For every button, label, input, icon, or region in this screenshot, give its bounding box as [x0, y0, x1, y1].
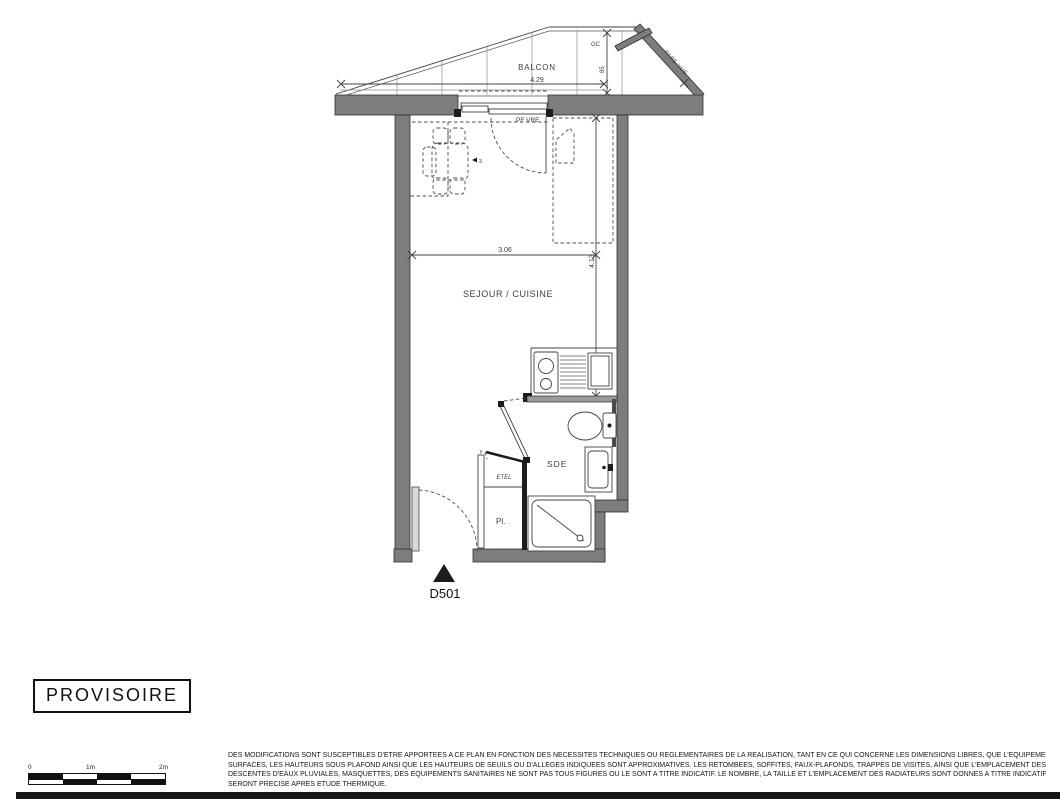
balcony: BALCON 4.29 GC 85 PARE-VUE — [336, 24, 704, 99]
scale-bar-box — [28, 773, 166, 785]
sde-door-swing — [504, 398, 526, 401]
disclaimer-line: DESCENTES D'EAUX PLUVIALES, MASQUETTES, … — [228, 770, 1046, 780]
kitchen-sink-basin — [591, 356, 609, 386]
wall-top-right — [548, 95, 703, 115]
entrance: D501 — [412, 487, 477, 601]
washbasin — [585, 447, 613, 492]
window-door-swing — [491, 118, 546, 173]
drainboard-hatch — [560, 356, 586, 388]
walls — [335, 95, 703, 562]
sde-label: SDE — [547, 459, 567, 469]
balcony-label: BALCON — [518, 63, 556, 72]
window-sash-right — [489, 109, 547, 114]
entrance-door-swing — [419, 490, 477, 551]
bed-dashed — [553, 118, 613, 243]
closet-label: Pl. — [496, 517, 505, 526]
burner — [539, 359, 554, 374]
closets: ETEL Pl. — [478, 450, 527, 550]
wall-right — [617, 115, 628, 500]
chair — [423, 147, 436, 176]
shower-tray — [528, 496, 595, 551]
bottom-border-bar — [16, 792, 1060, 799]
entrance-door-leaf — [412, 487, 419, 551]
kitchen-zone-dashed — [410, 122, 448, 196]
floor-plan-page: BALCON 4.29 GC 85 PARE-VUE PF VRE — [0, 0, 1060, 800]
kitchen — [523, 348, 617, 402]
dining-table: 3 — [423, 128, 482, 194]
wall-bottom-left-stub — [394, 549, 412, 562]
chair — [433, 178, 448, 194]
gc-label: GC — [591, 42, 601, 48]
wall-right-step — [595, 500, 628, 512]
provisoire-stamp: PROVISOIRE — [33, 679, 191, 713]
chair — [433, 128, 448, 144]
sde-partition-wall — [527, 396, 617, 402]
window-sash-left — [462, 106, 488, 112]
window-jamb-left — [454, 109, 461, 117]
disclaimer-text: DES MODIFICATIONS SONT SUSCEPTIBLES D'ET… — [228, 751, 1046, 790]
wall-top-left — [335, 95, 458, 115]
entrance-marker-icon — [433, 564, 455, 582]
disclaimer-line: DES MODIFICATIONS SONT SUSCEPTIBLES D'ET… — [228, 751, 1046, 761]
wall-left — [395, 115, 410, 552]
toilet — [568, 412, 616, 440]
shower-drain — [577, 535, 583, 541]
living-width-dim-text: 3.06 — [498, 247, 512, 254]
window-label: PF VRE — [516, 117, 540, 124]
chair — [450, 128, 465, 144]
living-room: SEJOUR / CUISINE 3.06 4.13 3 — [408, 114, 613, 400]
disclaimer-line: SURFACES, LES HAUTEURS SOUS PLAFOND AINS… — [228, 761, 1046, 771]
balcony-dim-text: 4.29 — [530, 77, 544, 84]
unit-label: D501 — [429, 586, 460, 601]
living-length-dim-text: 4.13 — [589, 254, 596, 268]
etel-door — [486, 452, 525, 462]
scale-label-2m: 2m — [159, 764, 168, 771]
scale-label-1m: 1m — [86, 764, 95, 771]
sde-door-leaf — [500, 404, 529, 461]
window-jamb-right — [546, 109, 553, 117]
balcony-depth-dim-text: 85 — [600, 66, 606, 73]
table-tag-arrow-icon — [472, 158, 477, 163]
sde-door-hinge-block — [498, 401, 504, 407]
table-tag: 3 — [479, 159, 482, 165]
living-room-label: SEJOUR / CUISINE — [463, 289, 553, 299]
pillow — [556, 128, 574, 163]
closet-side-wall — [522, 462, 527, 550]
closet-front-panel — [478, 455, 484, 548]
etel-label: ETEL — [496, 475, 511, 481]
disclaimer-line: SERONT PRECISE APRES ETUDE THERMIQUE. — [228, 780, 1046, 790]
scale-label-0: 0 — [28, 764, 32, 771]
faucet-icon — [608, 464, 613, 471]
burner — [541, 379, 552, 390]
